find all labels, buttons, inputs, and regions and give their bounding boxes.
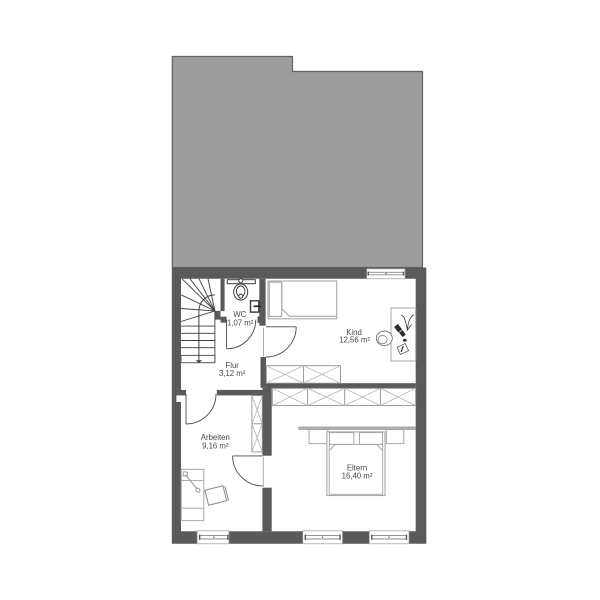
svg-text:9,16 m²: 9,16 m² [202,441,229,450]
svg-text:16,40 m²: 16,40 m² [342,472,373,481]
svg-text:3,12 m²: 3,12 m² [219,369,246,378]
svg-text:12,56 m²: 12,56 m² [339,336,370,345]
svg-text:1,07 m²: 1,07 m² [227,318,254,327]
